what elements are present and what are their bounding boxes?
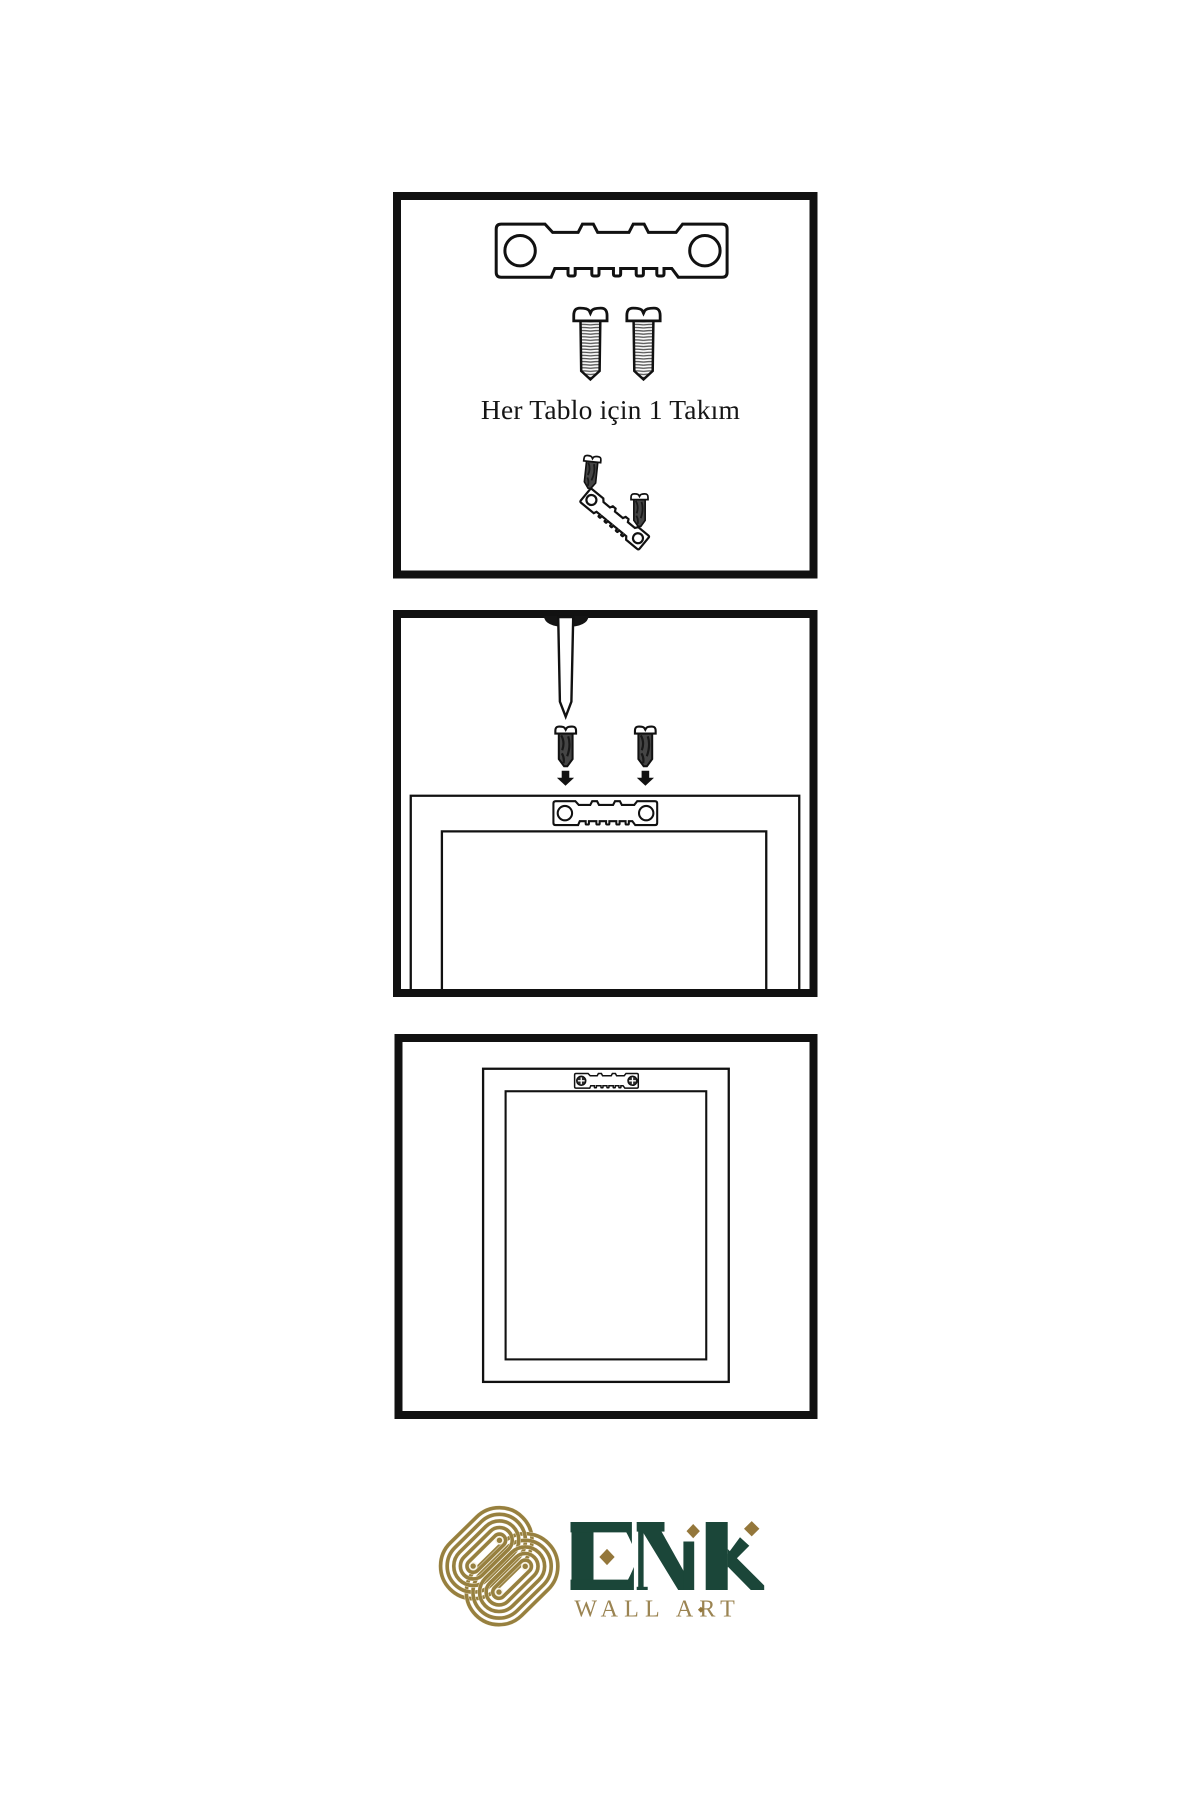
svg-text:WALL ART: WALL ART [574,1597,741,1623]
svg-text:Her Tablo için 1 Takım: Her Tablo için 1 Takım [481,394,740,425]
